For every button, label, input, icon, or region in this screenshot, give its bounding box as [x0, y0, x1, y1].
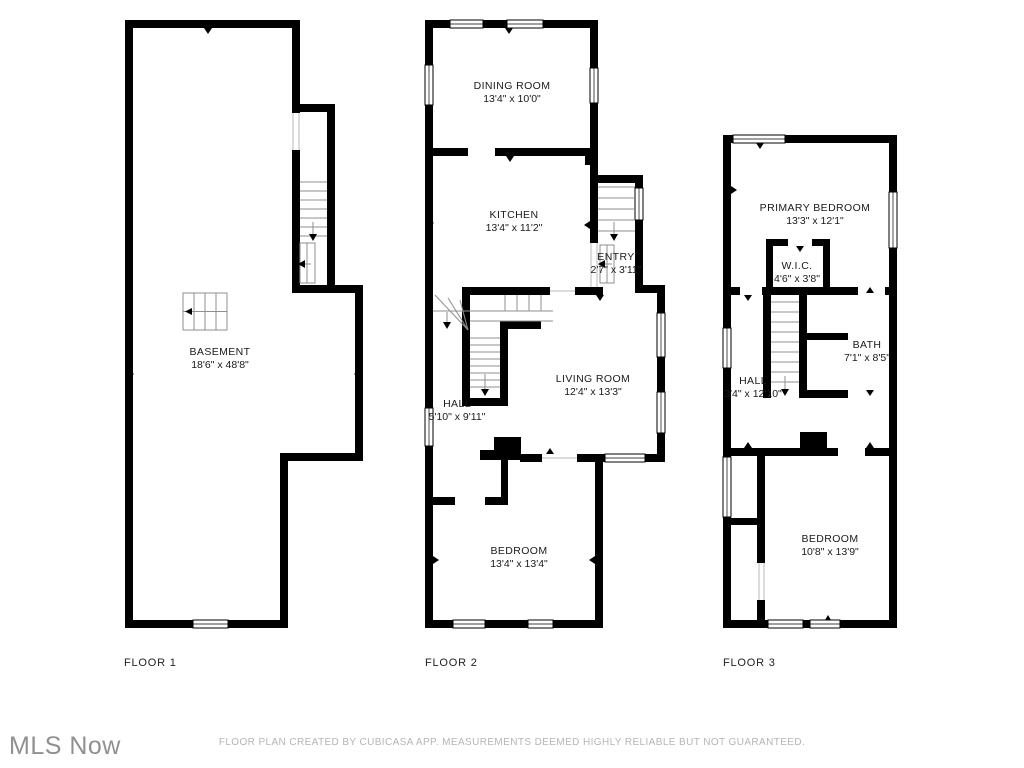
- room-label-primary-bedroom: PRIMARY BEDROOM 13'3" x 12'1": [760, 202, 871, 227]
- floor-2-caption: FLOOR 2: [425, 657, 478, 669]
- room-dims: 3'4" x 12'10": [724, 388, 782, 400]
- stair-down-arrow-icon: [309, 234, 317, 241]
- floor-1-ticks: [128, 28, 360, 378]
- room-dims: 10'8" x 13'9": [801, 546, 859, 558]
- floor-1-window: [193, 620, 228, 628]
- stair-down-arrow-icon: [481, 389, 489, 396]
- floor-plan-drawing: [0, 0, 1024, 768]
- room-name: KITCHEN: [486, 209, 543, 221]
- floor-2-plan: [425, 20, 665, 628]
- stair-down-arrow-icon: [610, 234, 618, 241]
- floor-1-walls: [125, 20, 363, 628]
- floor-1-caption: FLOOR 1: [124, 657, 177, 669]
- room-dims: 13'4" x 13'4": [490, 558, 548, 570]
- floor-2-windows: [425, 20, 665, 628]
- room-name: HALL: [429, 398, 486, 410]
- room-dims: 7'1" x 8'5": [844, 352, 890, 364]
- room-name: BATH: [844, 339, 890, 351]
- floor-2-walls: [425, 20, 665, 628]
- room-label-basement: BASEMENT 18'6" x 48'8": [190, 346, 251, 371]
- room-name: BEDROOM: [490, 545, 548, 557]
- floor-plan-sheet: BASEMENT 18'6" x 48'8" DINING ROOM 13'4"…: [0, 0, 1024, 768]
- room-dims: 13'4" x 10'0": [474, 93, 551, 105]
- floor-2-ticks: [428, 28, 604, 564]
- floor-1-plan: [125, 20, 363, 628]
- floor-1-staircase: [298, 182, 327, 283]
- chimney-block: [494, 437, 521, 460]
- room-label-hall-floor2: HALL 5'10" x 9'11": [429, 398, 486, 423]
- room-name: DINING ROOM: [474, 80, 551, 92]
- room-dims: 2'7" x 3'11": [591, 264, 642, 276]
- room-name: W.I.C.: [774, 260, 820, 272]
- floor-1-door-jamb: [293, 113, 299, 150]
- room-name: LIVING ROOM: [556, 373, 630, 385]
- stair-left-arrow-icon: [185, 308, 192, 315]
- room-label-wic: W.I.C. 4'6" x 3'8": [774, 260, 820, 285]
- room-label-kitchen: KITCHEN 13'4" x 11'2": [486, 209, 543, 234]
- room-label-living-room: LIVING ROOM 12'4" x 13'3": [556, 373, 630, 398]
- room-name: HALL: [724, 375, 782, 387]
- room-dims: 13'3" x 12'1": [760, 215, 871, 227]
- room-label-hall-floor3: HALL 3'4" x 12'10": [724, 375, 782, 400]
- room-dims: 18'6" x 48'8": [190, 359, 251, 371]
- floor-3-caption: FLOOR 3: [723, 657, 776, 669]
- room-label-bedroom-floor3: BEDROOM 10'8" x 13'9": [801, 533, 859, 558]
- room-dims: 13'4" x 11'2": [486, 222, 543, 234]
- room-label-entry: ENTRY 2'7" x 3'11": [591, 251, 642, 276]
- stair-down-arrow-icon: [443, 322, 451, 329]
- room-dims: 12'4" x 13'3": [556, 386, 630, 398]
- room-label-bath: BATH 7'1" x 8'5": [844, 339, 890, 364]
- room-name: BASEMENT: [190, 346, 251, 358]
- room-name: BEDROOM: [801, 533, 859, 545]
- room-name: ENTRY: [591, 251, 642, 263]
- basement-stair-glyph: [183, 293, 227, 330]
- room-label-dining-room: DINING ROOM 13'4" x 10'0": [474, 80, 551, 105]
- disclaimer-text: FLOOR PLAN CREATED BY CUBICASA APP. MEAS…: [0, 737, 1024, 748]
- room-label-bedroom-floor2: BEDROOM 13'4" x 13'4": [490, 545, 548, 570]
- room-name: PRIMARY BEDROOM: [760, 202, 871, 214]
- floor-2-doors: [542, 243, 597, 458]
- room-dims: 4'6" x 3'8": [774, 273, 820, 285]
- chimney-block: [800, 432, 827, 456]
- floor-3-doors: [759, 563, 764, 600]
- floor-2-staircase: [433, 295, 553, 396]
- room-dims: 5'10" x 9'11": [429, 411, 486, 423]
